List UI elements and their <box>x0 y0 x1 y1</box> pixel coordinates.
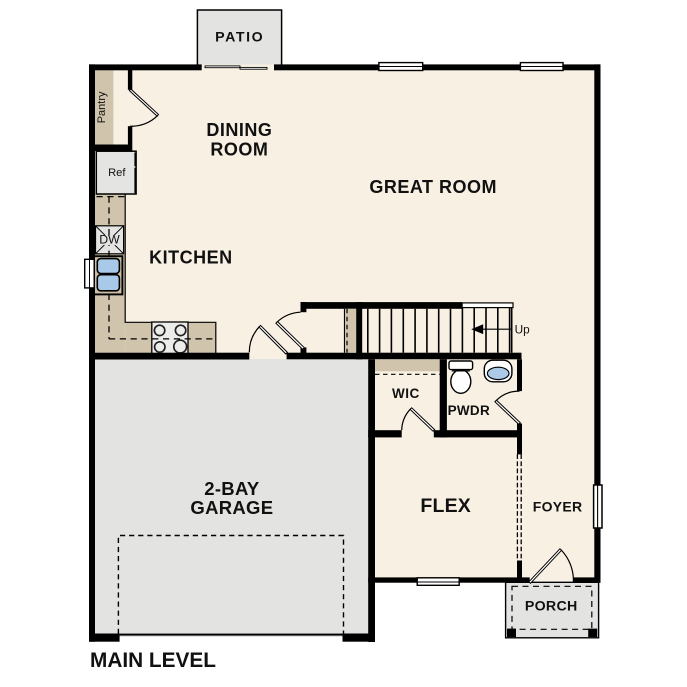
svg-text:FOYER: FOYER <box>533 499 583 515</box>
svg-text:Ref: Ref <box>108 167 126 179</box>
svg-text:DW: DW <box>99 233 120 247</box>
svg-text:GREAT ROOM: GREAT ROOM <box>369 177 497 197</box>
svg-text:ROOM: ROOM <box>210 139 268 159</box>
svg-text:WIC: WIC <box>392 386 420 401</box>
svg-text:PATIO: PATIO <box>215 30 264 46</box>
svg-text:PORCH: PORCH <box>525 599 578 615</box>
svg-text:Pantry: Pantry <box>96 91 108 123</box>
svg-text:KITCHEN: KITCHEN <box>149 247 233 267</box>
svg-text:PWDR: PWDR <box>448 403 490 418</box>
svg-text:FLEX: FLEX <box>420 495 471 517</box>
svg-text:Up: Up <box>515 322 531 336</box>
svg-text:GARAGE: GARAGE <box>190 497 273 518</box>
svg-text:MAIN LEVEL: MAIN LEVEL <box>90 649 216 672</box>
svg-text:DINING: DINING <box>206 120 272 140</box>
svg-text:2-BAY: 2-BAY <box>204 478 260 499</box>
